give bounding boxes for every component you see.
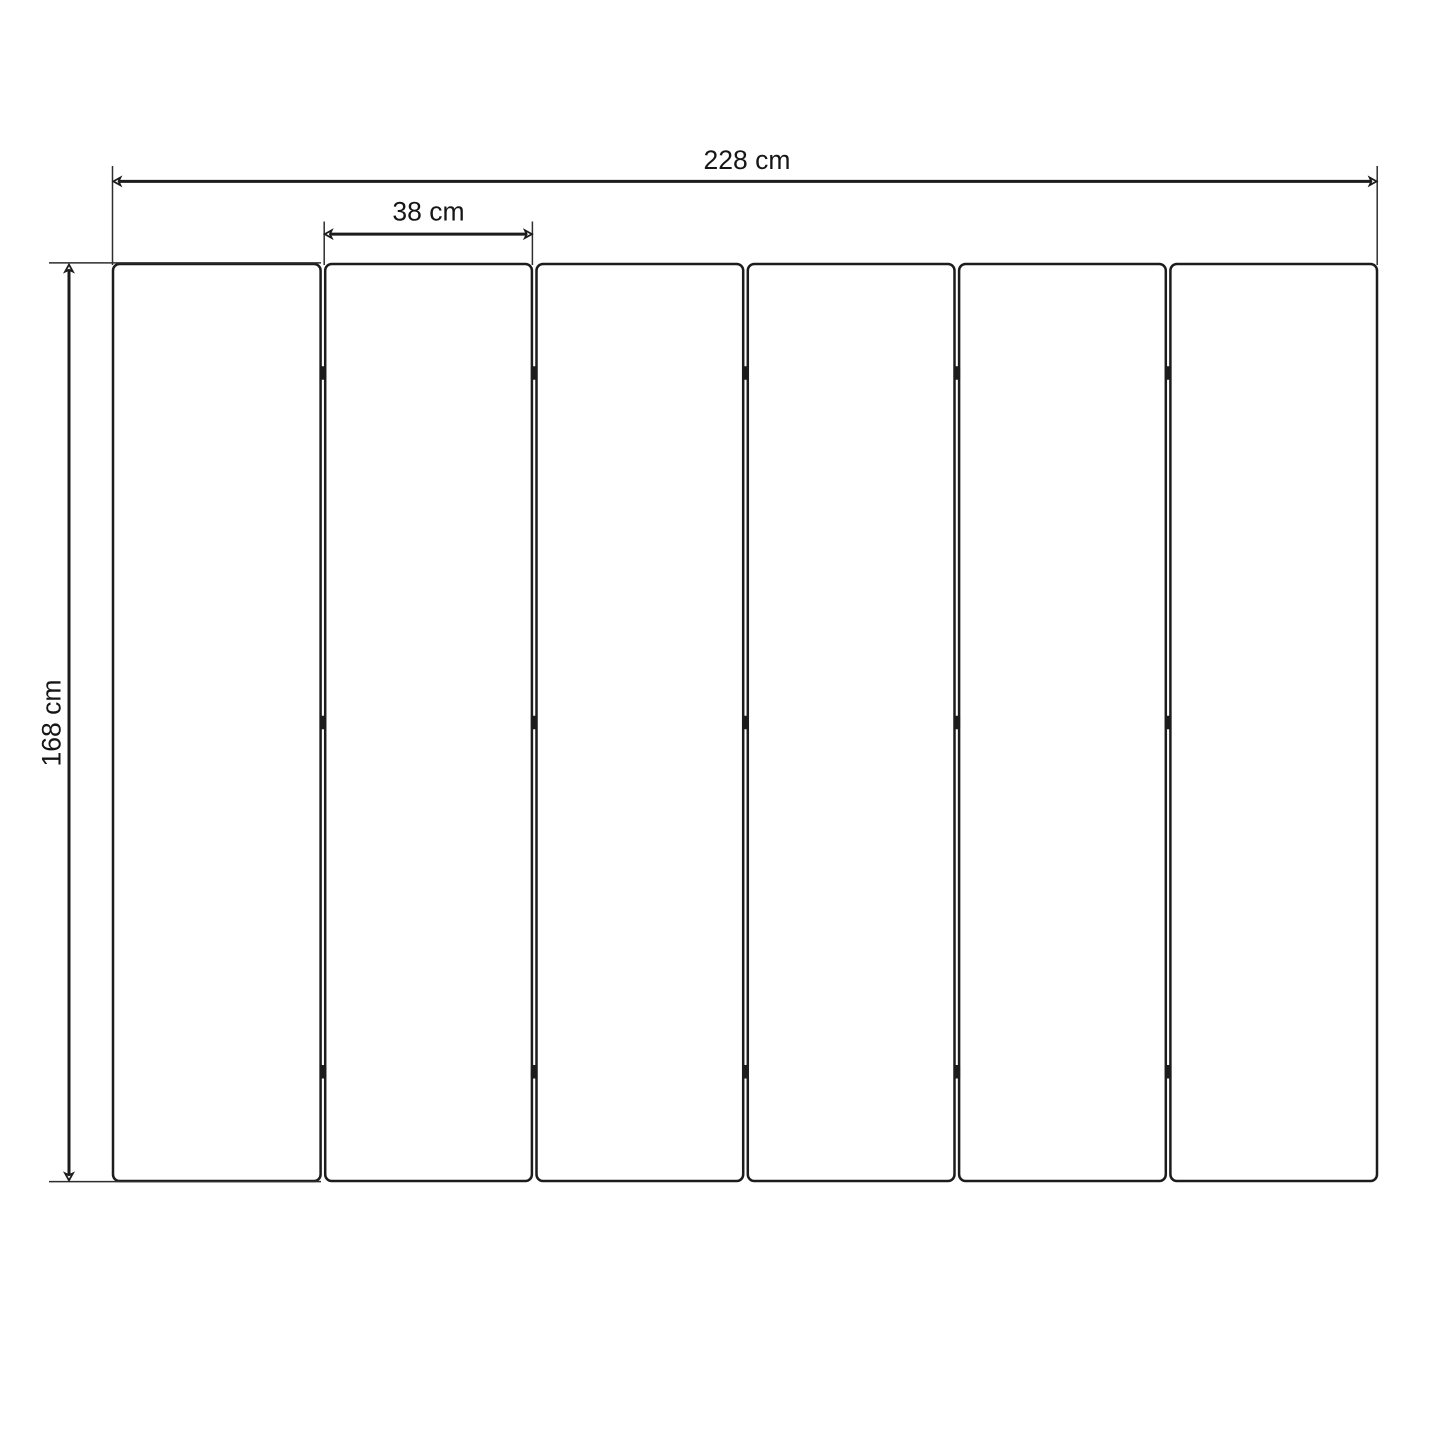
svg-text:168 cm: 168 cm (37, 680, 67, 767)
svg-text:38 cm: 38 cm (392, 196, 464, 226)
svg-text:228 cm: 228 cm (704, 145, 791, 175)
